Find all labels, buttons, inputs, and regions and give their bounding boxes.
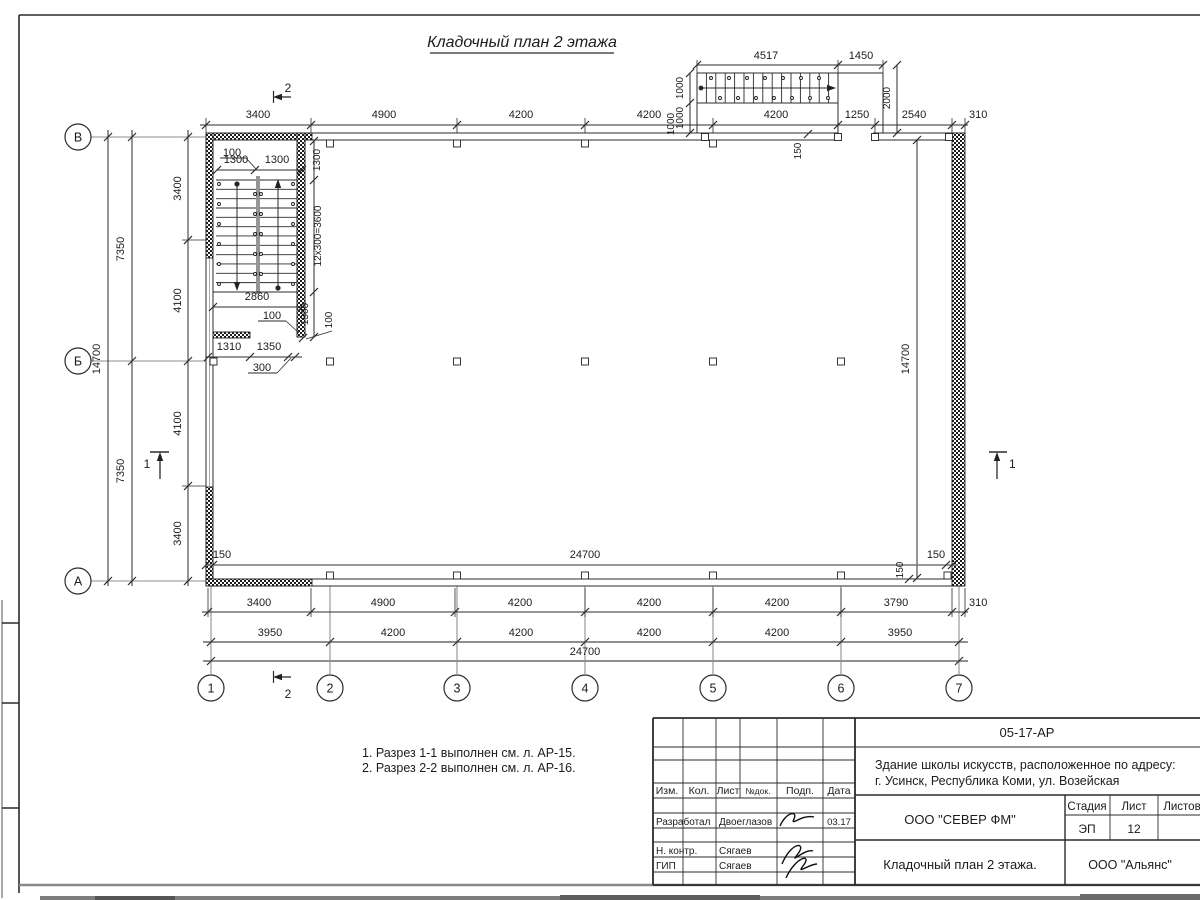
column	[327, 572, 334, 579]
drawing-title: Кладочный план 2 этажа	[427, 34, 617, 51]
scan-noise	[560, 895, 760, 900]
dim-label: 12x300=3600	[313, 205, 324, 266]
dim-label: 1000	[675, 76, 686, 99]
axis-bubble-label: 5	[710, 682, 717, 696]
baluster-dot	[254, 193, 257, 196]
dim-label: 24700	[570, 549, 601, 561]
baluster-dot	[218, 243, 221, 246]
titleblock-name: Сягаев	[719, 861, 752, 872]
masonry-wall	[206, 133, 312, 140]
column	[710, 358, 717, 365]
arrowhead-left	[273, 674, 282, 680]
signature	[782, 845, 817, 878]
dim-label: 4100	[172, 411, 184, 435]
titleblock-header: Лист	[717, 785, 740, 797]
dim-label: 4200	[637, 109, 661, 121]
titleblock-header: Лист	[1122, 801, 1148, 813]
titleblock-name: Двоеглазов	[719, 817, 772, 828]
dim-label: 4200	[637, 627, 661, 639]
titleblock-project: г. Усинск, Республика Коми, ул. Возейска…	[875, 774, 1119, 788]
baluster-dot	[218, 203, 221, 206]
dim-label: 1300	[312, 148, 323, 171]
dim-label: 1310	[217, 341, 241, 353]
axis-bubble-label: Б	[74, 355, 82, 369]
masonry-wall	[213, 332, 250, 338]
masonry-wall	[206, 487, 213, 586]
column	[582, 572, 589, 579]
column	[454, 140, 461, 147]
dim-label: 1000	[666, 112, 677, 135]
section-label: 2	[285, 687, 292, 701]
titleblock-role: Н. контр.	[656, 846, 697, 857]
column	[944, 572, 951, 579]
column	[835, 134, 842, 141]
baluster-dot	[254, 253, 257, 256]
column	[702, 134, 709, 141]
axis-bubble-label: В	[74, 131, 82, 145]
dim-label: 150	[895, 561, 906, 578]
dim-label: 1300	[265, 154, 289, 166]
baluster-dot	[818, 77, 821, 80]
titleblock-date: 03.17	[827, 817, 851, 828]
dim-label: 3400	[172, 521, 184, 545]
column	[838, 358, 845, 365]
dim-label: 14700	[91, 344, 103, 375]
dim-label: 2540	[902, 109, 926, 121]
arrowhead-down	[234, 282, 240, 291]
dim-label: 4900	[372, 109, 396, 121]
titleblock-header: Стадия	[1067, 801, 1106, 813]
titleblock-header: Листов	[1163, 801, 1200, 813]
arrowhead-up	[994, 452, 1000, 461]
titleblock-name: Сягаев	[719, 846, 752, 857]
baluster-dot	[218, 183, 221, 186]
baluster-dot	[782, 77, 785, 80]
baluster-dot	[809, 97, 812, 100]
section-label: 1	[1009, 457, 1016, 471]
dim-label: 4200	[509, 109, 533, 121]
titleblock-org: ООО "Альянс"	[1088, 858, 1172, 872]
dim-label: 3790	[884, 597, 908, 609]
titleblock-org: ООО "СЕВЕР ФМ"	[904, 812, 1016, 827]
baluster-dot	[254, 273, 257, 276]
column	[327, 140, 334, 147]
note-line: 2. Разрез 2-2 выполнен см. л. АР-16.	[362, 761, 576, 775]
arrowhead-right	[827, 85, 836, 91]
dim-label: 2860	[245, 291, 269, 303]
dim-label: 1500	[300, 302, 311, 325]
column	[454, 572, 461, 579]
signature	[780, 814, 814, 826]
titleblock-stage: ЭП	[1078, 822, 1095, 836]
baluster-dot	[791, 97, 794, 100]
dim-label: 4200	[765, 597, 789, 609]
dim-label: 4200	[637, 597, 661, 609]
dim-label: 150	[213, 549, 231, 561]
dim-label: 100	[324, 311, 335, 328]
dim-tick	[804, 130, 812, 138]
dim-label: 3400	[172, 176, 184, 200]
axis-bubble-label: 7	[956, 682, 963, 696]
dim-label: 2000	[882, 86, 893, 109]
baluster-dot	[827, 97, 830, 100]
scan-noise	[1080, 894, 1200, 900]
dim-label: 4200	[764, 109, 788, 121]
baluster-dot	[260, 233, 263, 236]
dim-label: 300	[253, 362, 271, 374]
column	[872, 134, 879, 141]
baluster-dot	[254, 213, 257, 216]
titleblock-code: 05-17-АР	[1000, 725, 1055, 740]
titleblock-header: Дата	[827, 785, 850, 797]
arrowhead-up	[157, 452, 163, 461]
dim-label: 24700	[570, 646, 601, 658]
baluster-dot	[254, 233, 257, 236]
dim-label: 4200	[508, 597, 532, 609]
titleblock-header: Подп.	[786, 785, 814, 797]
column	[582, 358, 589, 365]
baluster-dot	[292, 283, 295, 286]
dim-label: 7350	[115, 459, 127, 483]
baluster-dot	[800, 77, 803, 80]
baluster-dot	[764, 77, 767, 80]
baluster-dot	[292, 203, 295, 206]
baluster-dot	[260, 213, 263, 216]
baluster-dot	[710, 77, 713, 80]
masonry-wall	[206, 579, 312, 586]
blueprint-sheet: 3400490042004200420012502540310451714501…	[0, 0, 1200, 900]
column	[454, 358, 461, 365]
titleblock-drawing-title: Кладочный план 2 этажа.	[883, 857, 1037, 872]
titleblock-header: Изм.	[656, 785, 679, 797]
dim-label: 3950	[888, 627, 912, 639]
scan-noise	[95, 896, 175, 900]
baluster-dot	[292, 223, 295, 226]
baluster-dot	[260, 193, 263, 196]
titleblock-header: Кол.	[689, 785, 710, 797]
column	[327, 358, 334, 365]
dim-label: 3400	[247, 597, 271, 609]
baluster-dot	[728, 77, 731, 80]
axis-bubble-label: А	[74, 575, 83, 589]
titleblock-project: Здание школы искусств, расположенное по …	[875, 758, 1176, 772]
baluster-dot	[218, 263, 221, 266]
baluster-dot	[218, 223, 221, 226]
line	[306, 331, 332, 339]
baluster-dot	[292, 243, 295, 246]
titleblock-header: №док.	[746, 786, 771, 796]
dim-label: 100	[263, 310, 281, 322]
column	[582, 140, 589, 147]
baluster-dot	[755, 97, 758, 100]
dim-label: 14700	[900, 344, 912, 375]
masonry-plan-drawing: 3400490042004200420012502540310451714501…	[0, 0, 1200, 900]
column	[838, 572, 845, 579]
dim-label: 1350	[257, 341, 281, 353]
dim-label: 1250	[845, 109, 869, 121]
axis-bubble-label: 2	[327, 682, 334, 696]
dim-label: 100	[223, 147, 241, 159]
column	[946, 134, 953, 141]
dim-label: 4200	[509, 627, 533, 639]
column	[210, 358, 217, 365]
titleblock-sheet-number: 12	[1127, 822, 1141, 836]
axis-bubble-label: 3	[454, 682, 461, 696]
axis-bubble-label: 4	[582, 682, 589, 696]
column	[710, 572, 717, 579]
dim-label: 4100	[172, 288, 184, 312]
section-label: 2	[285, 81, 292, 95]
baluster-dot	[737, 97, 740, 100]
dim-label: 4200	[765, 627, 789, 639]
masonry-wall	[206, 133, 213, 258]
dim-label: 150	[927, 549, 945, 561]
dim-label: 4200	[381, 627, 405, 639]
titleblock-role: ГИП	[656, 861, 676, 872]
dim-label: 7350	[115, 237, 127, 261]
baluster-dot	[746, 77, 749, 80]
dim-label: 310	[969, 597, 987, 609]
column	[710, 140, 717, 147]
baluster-dot	[260, 253, 263, 256]
baluster-dot	[260, 273, 263, 276]
titleblock-role: Разработал	[656, 816, 711, 828]
arrowhead-left	[273, 94, 282, 100]
drawing-geometry: 3400490042004200420012502540310451714501…	[2, 15, 1200, 900]
dim-label: 4517	[754, 50, 778, 62]
dim-label: 150	[793, 142, 804, 159]
axis-bubble-label: 1	[208, 682, 215, 696]
dim-label: 3400	[246, 109, 270, 121]
baluster-dot	[773, 97, 776, 100]
dim-label: 310	[969, 109, 987, 121]
section-label: 1	[144, 457, 151, 471]
dim-label: 4900	[371, 597, 395, 609]
baluster-dot	[218, 283, 221, 286]
axis-bubble-label: 6	[838, 682, 845, 696]
baluster-dot	[719, 97, 722, 100]
masonry-wall	[952, 133, 965, 586]
baluster-dot	[292, 183, 295, 186]
note-line: 1. Разрез 1-1 выполнен см. л. АР-15.	[362, 746, 576, 760]
dim-label: 3950	[258, 627, 282, 639]
dim-label: 1450	[849, 50, 873, 62]
baluster-dot	[292, 263, 295, 266]
